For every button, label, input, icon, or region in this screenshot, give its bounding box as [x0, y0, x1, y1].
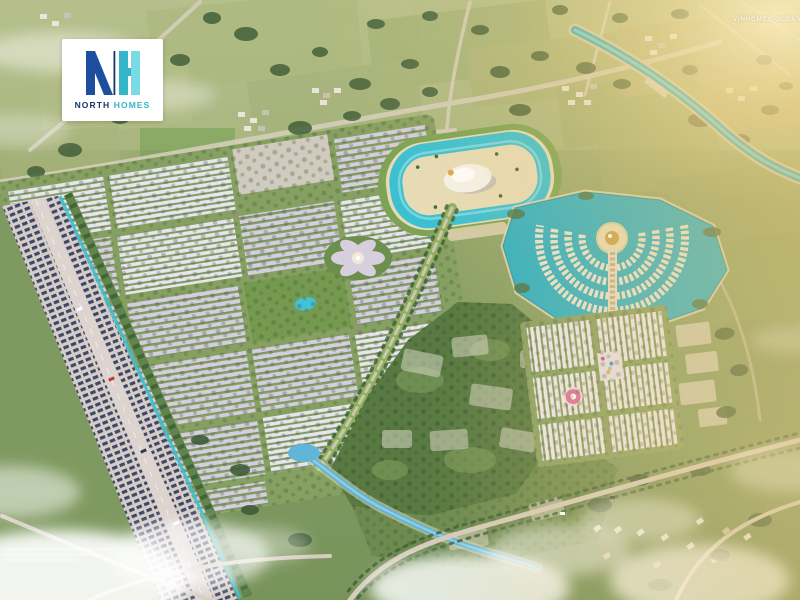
- logo-monogram: [86, 51, 140, 95]
- aerial-render: NORTH HOMES VINHOMES OCEAN: [0, 0, 800, 600]
- fine-print-watermark: [3, 548, 113, 563]
- fine-print-line: [3, 553, 104, 556]
- logo-wordmark: NORTH HOMES: [75, 101, 151, 110]
- north-homes-logo: NORTH HOMES: [62, 39, 163, 121]
- fine-print-line: [3, 558, 78, 561]
- logo-wordmark-first: NORTH: [75, 100, 111, 110]
- project-watermark: VINHOMES OCEAN: [733, 16, 800, 23]
- logo-wordmark-second: HOMES: [114, 100, 151, 110]
- fine-print-line: [3, 548, 113, 551]
